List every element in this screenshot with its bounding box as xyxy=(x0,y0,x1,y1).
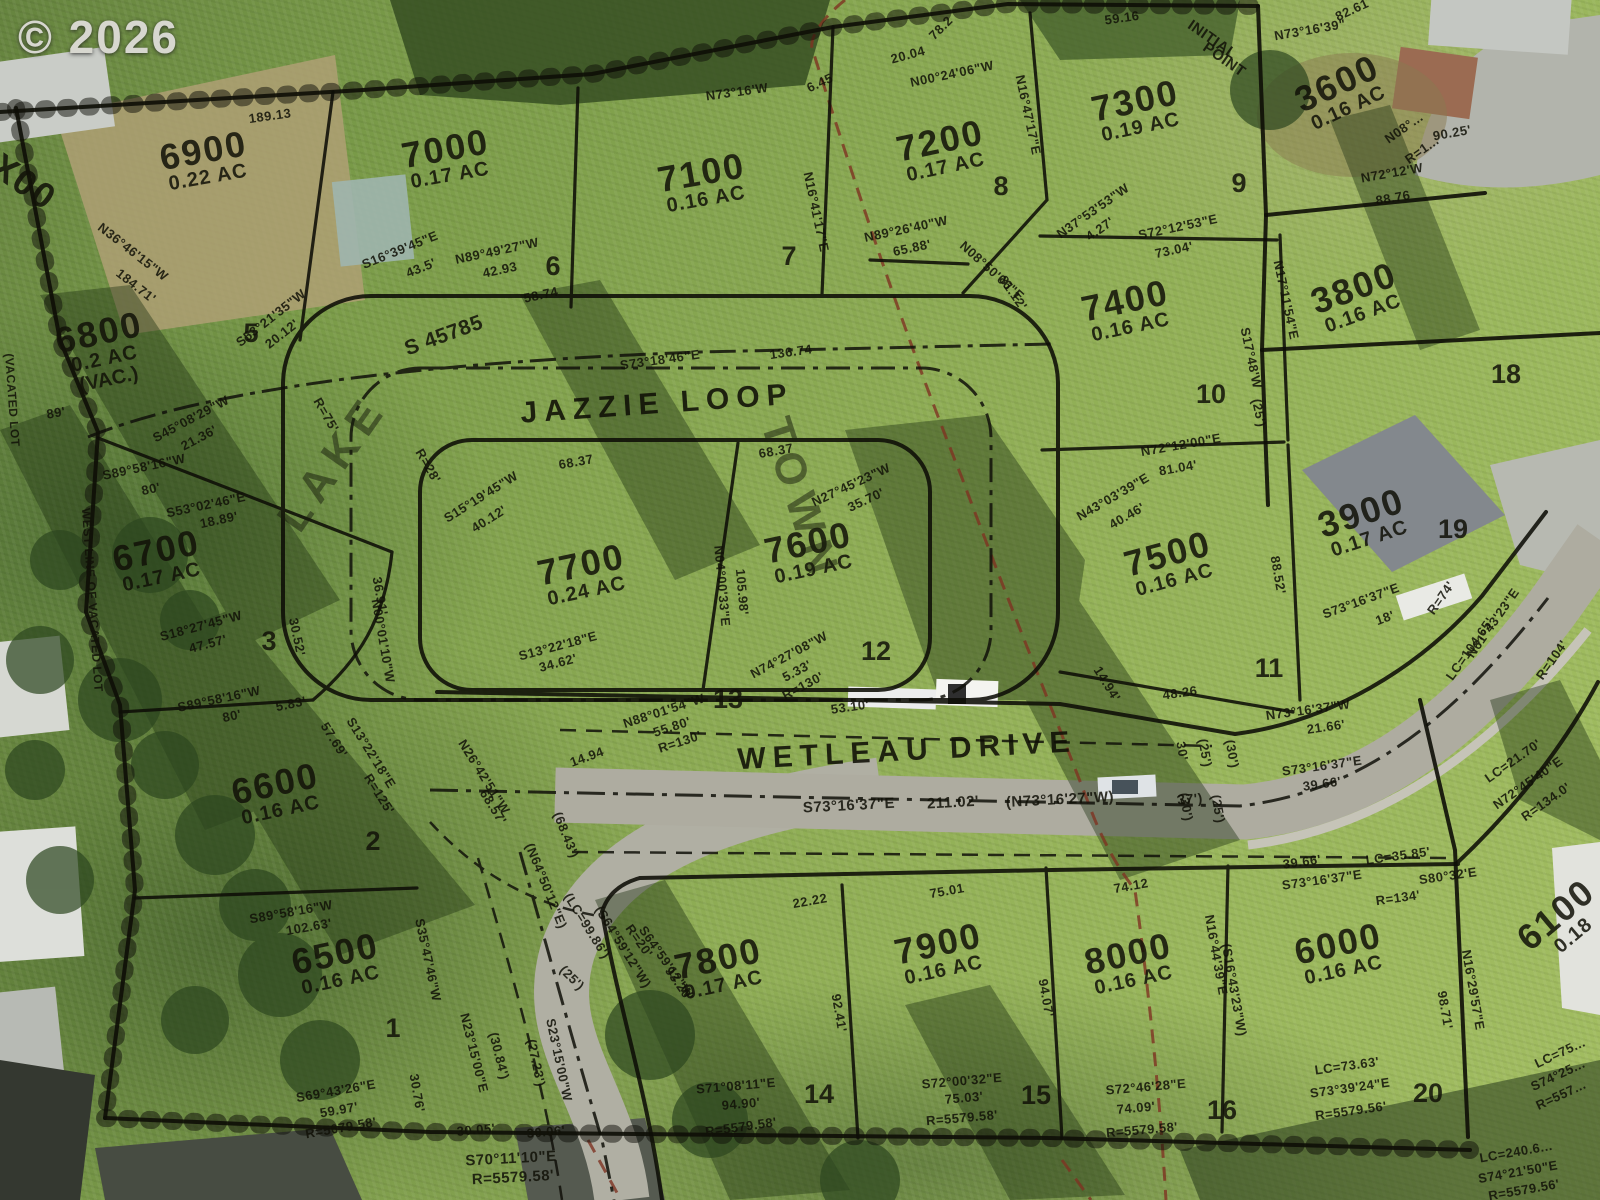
map-annotation: 20.04 xyxy=(889,44,926,66)
map-annotation: R=28' xyxy=(413,447,443,486)
map-annotation: (25') xyxy=(557,963,587,993)
lot-label-6100: 61000.18 xyxy=(1510,872,1600,972)
lot-index-16: 16 xyxy=(1207,1096,1237,1124)
map-annotation: 65.88' xyxy=(892,237,933,258)
map-annotation: S73°16'37"E xyxy=(803,796,896,817)
lot-index-number: 9 xyxy=(1231,169,1246,197)
map-annotation: S71°08'11"E xyxy=(696,1076,777,1097)
map-annotation: 5.83' xyxy=(274,694,307,714)
map-annotation: WEST LINE OF VACATED LOT xyxy=(79,508,104,693)
lot-label-6700: 67000.17 AC xyxy=(109,523,207,597)
map-annotation: N23°15'00"E xyxy=(458,1012,491,1094)
lot-index-15: 15 xyxy=(1021,1081,1051,1109)
map-annotation: S73°39'24"E xyxy=(1309,1076,1391,1101)
lot-index-18: 18 xyxy=(1491,360,1521,388)
lot-index-3: 3 xyxy=(261,627,276,655)
map-annotation: 42.93 xyxy=(481,260,518,281)
lot-index-12: 12 xyxy=(861,637,891,665)
map-annotation: 39.66' xyxy=(1302,775,1342,794)
lot-label-7400: 74000.16 AC xyxy=(1078,273,1176,347)
map-annotation: S72°12'53"E xyxy=(1137,212,1219,242)
ghost-text: LAKE xyxy=(269,386,396,540)
map-annotation: 59.16 xyxy=(1104,9,1141,27)
map-annotation: R=5579.58' xyxy=(926,1108,999,1128)
map-annotation: N72°12'00"E xyxy=(1140,431,1223,459)
lot-index-11: 11 xyxy=(1255,654,1284,682)
map-annotation: 90.25' xyxy=(1432,123,1472,143)
map-annotation: 75.03' xyxy=(944,1090,984,1107)
lot-label-6900: 69000.22 AC xyxy=(157,124,254,195)
street-label-wetleau-drive: WETLEAU DRIVE xyxy=(737,726,1078,775)
map-annotation: 82.61 xyxy=(1333,0,1371,24)
lot-index-10: 10 xyxy=(1196,380,1226,408)
map-annotation: 211.02' xyxy=(927,794,980,812)
map-annotation: 30.06' xyxy=(526,1124,566,1141)
lot-index-number: 7 xyxy=(781,242,796,270)
map-annotation: S73°16'37"E xyxy=(1281,868,1363,893)
map-annotation: N00°24'06"W xyxy=(909,58,995,89)
map-annotation: 74.09' xyxy=(1116,1100,1156,1117)
map-annotation: S89°58'16"W xyxy=(101,452,186,483)
lot-index-number: 16 xyxy=(1207,1096,1237,1124)
map-annotation: N04°00'33"E xyxy=(712,545,733,627)
map-annotation: N00°01'10"W xyxy=(369,598,397,684)
lot-index-8: 8 xyxy=(993,172,1008,200)
map-annotation: R=5579.58' xyxy=(704,1115,777,1139)
lot-index-number: 8 xyxy=(993,172,1008,200)
street-label-jazzie-loop: JAZZIE LOOP xyxy=(519,379,794,430)
map-annotation: 30.76' xyxy=(407,1073,427,1113)
map-annotation: (27.23') xyxy=(524,1038,547,1088)
map-annotation: S89°58'16"W xyxy=(176,684,261,715)
map-annotation: S 45785 xyxy=(402,312,486,361)
map-annotation: R=74' xyxy=(1425,579,1457,617)
lot-label-X00: X00 xyxy=(0,146,64,217)
map-annotation: S70°11'10"E xyxy=(465,1149,557,1170)
map-annotation: 6.45 xyxy=(805,71,836,95)
lot-index-number: 18 xyxy=(1491,360,1521,388)
map-annotation: S80°32'E xyxy=(1418,865,1478,887)
lot-label-7100: 71000.16 AC xyxy=(655,146,752,217)
map-annotation: (25') xyxy=(1249,398,1268,429)
lot-index-number: 12 xyxy=(861,637,891,665)
aerial-plat-map: X0069000.22 AC70000.17 AC71000.16 AC7200… xyxy=(0,0,1600,1200)
map-annotation: R=5579.56' xyxy=(1314,1099,1387,1123)
copyright-watermark: © 2026 xyxy=(18,10,179,64)
map-annotation: 136.74 xyxy=(769,342,813,361)
map-annotation: S23°15'00"W xyxy=(544,1017,575,1102)
map-annotation: (N73°16'27"W) xyxy=(1006,789,1115,810)
lot-index-number: 2 xyxy=(365,827,380,855)
map-annotation: S17°48'W xyxy=(1238,326,1264,390)
lot-label-3800: 38000.16 AC xyxy=(1306,255,1408,339)
lot-index-9: 9 xyxy=(1231,169,1246,197)
lot-label-6600: 66000.16 AC xyxy=(228,756,326,830)
lot-index-number: 14 xyxy=(804,1080,834,1108)
map-annotation: 73.04' xyxy=(1154,239,1195,260)
lot-label-8000: 80000.16 AC xyxy=(1081,926,1179,1000)
map-annotation: (N64°50'12"E) xyxy=(523,841,570,931)
map-annotation: 80' xyxy=(221,707,242,724)
lot-index-14: 14 xyxy=(804,1080,834,1108)
lot-label-3600: 36000.16 AC xyxy=(1289,48,1393,137)
lot-index-6: 6 xyxy=(545,252,560,280)
map-annotation: N73°16'W xyxy=(705,81,769,103)
map-annotation: 21.66' xyxy=(1306,718,1346,737)
map-annotation: 14.94' xyxy=(1091,664,1123,704)
lot-label-7900: 79000.16 AC xyxy=(891,916,989,990)
map-annotation: N89°26'40"W xyxy=(863,213,949,244)
lot-index-number: 1 xyxy=(385,1014,400,1042)
map-annotation: N16°47'17"E xyxy=(1013,74,1043,156)
map-annotation: N16°41'17"E xyxy=(801,171,831,253)
map-annotation: 88.52' xyxy=(1268,555,1288,595)
lot-index-20: 20 xyxy=(1413,1079,1443,1107)
lot-index-number: 3 xyxy=(261,627,276,655)
lot-label-7700: 77000.24 AC xyxy=(534,537,632,611)
map-annotation: (30.84') xyxy=(487,1031,512,1081)
map-annotation: 74.12 xyxy=(1113,876,1150,896)
map-annotation: LC=104.65' xyxy=(1444,615,1497,682)
map-annotation: R=5679.58' xyxy=(304,1115,377,1141)
lot-label-6000: 60000.16 AC xyxy=(1291,916,1389,990)
ghost-label-lake: LAKE xyxy=(269,386,396,540)
lot-label-7200: 72000.17 AC xyxy=(893,113,991,187)
map-annotation: R=5579.58' xyxy=(471,1168,554,1188)
lot-label-6500: 65000.16 AC xyxy=(288,926,386,1000)
street-name: WETLEAU DRIVE xyxy=(737,726,1078,775)
lot-label-3900: 39000.17 AC xyxy=(1313,481,1414,562)
map-annotation: 22.22 xyxy=(792,891,829,911)
lot-index-2: 2 xyxy=(365,827,380,855)
map-annotation: (VACATED LOT xyxy=(2,353,21,447)
lot-index-number: 13 xyxy=(713,685,743,713)
map-annotation: 53.10' xyxy=(830,698,870,717)
map-annotation: (25') xyxy=(1196,738,1214,769)
map-annotation: 75.01 xyxy=(929,881,966,901)
map-annotation: 88.76 xyxy=(1375,188,1412,208)
map-annotation: 30.05' xyxy=(456,1122,496,1139)
map-annotation: (68.43') xyxy=(551,810,582,860)
map-annotation: (30') xyxy=(1223,739,1241,770)
map-annotation: 68.37 xyxy=(558,452,595,472)
map-annotation: N17°11'54"E xyxy=(1271,259,1301,341)
map-annotation: N08°... xyxy=(1382,110,1425,146)
lot-index-number: 10 xyxy=(1196,380,1226,408)
map-annotation: 94.90' xyxy=(721,1096,761,1113)
lot-index-number: 11 xyxy=(1255,654,1284,682)
lot-index-number: 19 xyxy=(1438,515,1468,543)
map-annotation: 92.41' xyxy=(829,993,849,1033)
map-annotation: 47.57' xyxy=(188,632,229,655)
lot-label-7500: 75000.16 AC xyxy=(1120,524,1220,602)
map-annotation: S69°43'26"E xyxy=(295,1077,377,1104)
map-annotation: 94.07' xyxy=(1036,978,1056,1018)
map-annotation: 98.71' xyxy=(1435,990,1455,1030)
street-name: JAZZIE LOOP xyxy=(519,379,794,430)
lot-index-1: 1 xyxy=(385,1014,400,1042)
map-annotation: R=5579.58' xyxy=(1106,1120,1179,1140)
map-annotation: R=104' xyxy=(1534,638,1571,682)
map-annotation: 48.26 xyxy=(1162,684,1199,702)
map-annotation: S35°47'46"W xyxy=(413,917,444,1002)
map-annotation: N73°16'39" xyxy=(1273,17,1347,43)
map-annotation: 39.66' xyxy=(1282,853,1322,872)
map-annotation: 189.13 xyxy=(248,106,292,125)
map-annotation: S72°46'28"E xyxy=(1105,1077,1187,1098)
map-annotation: N72°12'W xyxy=(1360,161,1424,185)
map-annotation: S72°00'32"E xyxy=(921,1071,1003,1092)
map-annotation: (25') xyxy=(1209,794,1227,825)
map-annotation: LC=35.85' xyxy=(1365,845,1431,868)
map-annotation: 43.5' xyxy=(404,256,438,280)
lot-index-19: 19 xyxy=(1438,515,1468,543)
map-annotation: R=134' xyxy=(1375,888,1421,908)
map-annotation: 81.04' xyxy=(1158,458,1198,478)
map-annotation: 58.74 xyxy=(522,285,559,306)
plat-labels-layer: X0069000.22 AC70000.17 AC71000.16 AC7200… xyxy=(0,0,1600,1200)
map-annotation: 30' xyxy=(1174,740,1191,761)
lot-index-number: 20 xyxy=(1413,1079,1443,1107)
map-annotation: LC=73.63' xyxy=(1314,1055,1380,1078)
lot-index-number: 6 xyxy=(545,252,560,280)
map-annotation: S73°18'46"E xyxy=(619,348,701,373)
map-annotation: 89' xyxy=(45,405,66,422)
map-annotation: 30.52' xyxy=(286,617,307,658)
lot-index-7: 7 xyxy=(781,242,796,270)
map-annotation: S73°16'37"E xyxy=(1281,754,1363,779)
lot-index-13: 13 xyxy=(713,685,743,713)
map-annotation: 18' xyxy=(1374,608,1397,627)
lot-label-6800: 68000.2 AC(VAC.) xyxy=(52,305,154,399)
lot-index-number: 15 xyxy=(1021,1081,1051,1109)
map-annotation: N16°29'57"E xyxy=(1459,949,1487,1032)
lot-number: X00 xyxy=(0,146,64,217)
map-annotation: 78.2 xyxy=(927,14,956,43)
map-annotation: 14.94 xyxy=(568,745,606,770)
lot-label-7300: 73000.19 AC xyxy=(1088,73,1186,147)
map-annotation: 80' xyxy=(140,480,161,497)
lot-label-7000: 70000.17 AC xyxy=(399,122,496,193)
map-annotation: 105.98' xyxy=(733,568,751,615)
